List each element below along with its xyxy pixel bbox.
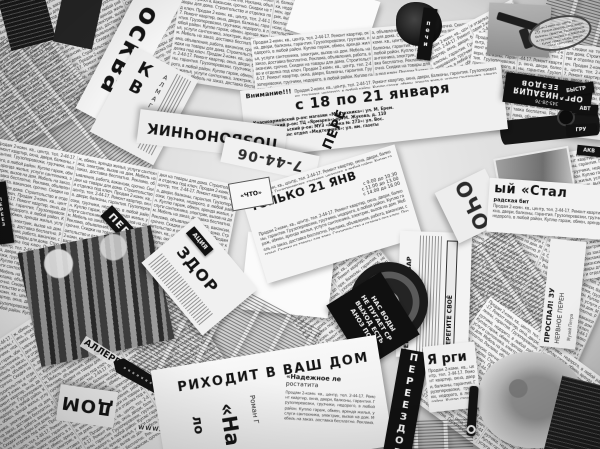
nadezhnoe-block: «Надежное ле ростатита Продам 2-комн. кв… — [284, 372, 376, 424]
tag-avt-label: АВТ — [579, 106, 590, 113]
dom-headline: ДОМ — [60, 392, 115, 420]
tag-gru-label: ГРУ — [575, 126, 586, 133]
tag-akv-label: АКВ — [583, 147, 595, 154]
exclamation-ring — [466, 425, 476, 435]
newspaper-collage-photo: Продам 2-комн. кв., центр, тел. 2-44-17.… — [0, 0, 600, 449]
beregite-strip: БЕРЕГИТЕ СВОЁ — [443, 240, 458, 352]
nadezhnoe-texture: Продам 2-комн. кв., центр, тел. 2-44-17.… — [284, 389, 375, 424]
lo-text: ло — [188, 415, 206, 436]
na-big-text: «На — [215, 401, 245, 447]
aciya-label: АЦИЯ — [191, 231, 209, 251]
pechi-label: печи — [422, 20, 433, 49]
stalingrad-scrap: ый «Стал радская бит Продам 2-комн. кв.,… — [486, 178, 600, 241]
tag-chip-gru: ГРУ — [566, 123, 597, 136]
chto-label: «ЧТО» — [240, 189, 263, 200]
tag-chip-avt: АВТ — [572, 103, 599, 115]
leftedge-strip-text: ПЕРЕЕЗ — [0, 198, 7, 228]
roman-text: Роман Г — [248, 394, 260, 424]
tag-bystr-label: БЫСТР — [566, 85, 586, 94]
